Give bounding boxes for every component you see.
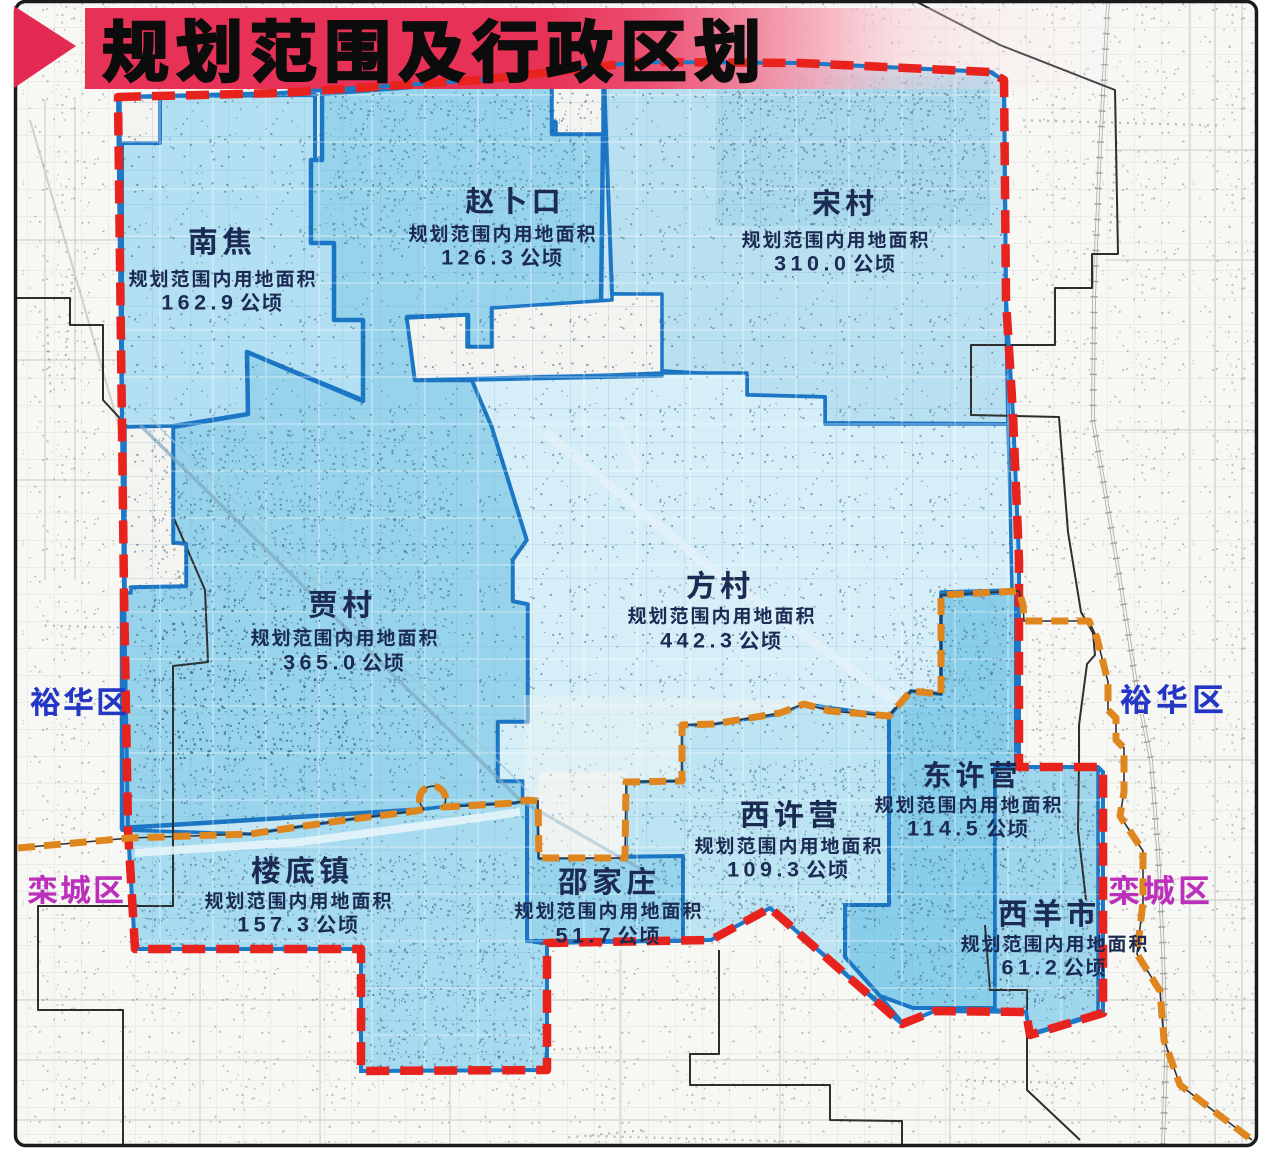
svg-text:162.9: 162.9: [161, 291, 237, 315]
svg-text:442.3: 442.3: [660, 629, 736, 653]
svg-text:126.3: 126.3: [441, 246, 517, 270]
svg-text:365.0: 365.0: [283, 651, 359, 675]
svg-text:61.2: 61.2: [1002, 956, 1062, 980]
svg-text:51.7: 51.7: [556, 924, 616, 948]
svg-text:114.5: 114.5: [907, 817, 982, 841]
svg-text:310.0: 310.0: [774, 252, 850, 276]
svg-text:157.3: 157.3: [237, 913, 313, 937]
svg-text:109.3: 109.3: [727, 858, 803, 882]
